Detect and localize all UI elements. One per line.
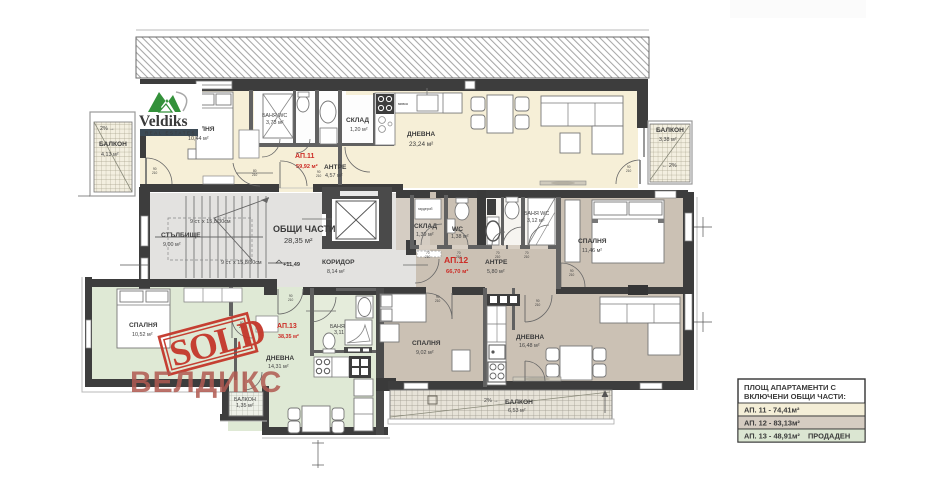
svg-text:210: 210 (456, 255, 462, 259)
svg-text:5,80 м²: 5,80 м² (487, 269, 505, 275)
svg-text:16,48 м²: 16,48 м² (519, 343, 540, 349)
svg-text:210: 210 (316, 174, 322, 178)
svg-text:4,13 м²: 4,13 м² (101, 152, 119, 158)
svg-text:ДНЕВНА: ДНЕВНА (266, 355, 294, 362)
svg-text:210: 210 (288, 298, 294, 302)
svg-text:210: 210 (569, 273, 575, 277)
svg-text:ОБЩИ ЧАСТИ: ОБЩИ ЧАСТИ (273, 224, 335, 234)
svg-text:3,38 м²: 3,38 м² (659, 137, 677, 143)
svg-text:БАНЯ WC: БАНЯ WC (524, 211, 549, 217)
svg-text:АП. 11 - 74,41м²: АП. 11 - 74,41м² (744, 406, 800, 415)
svg-text:210: 210 (524, 255, 530, 259)
svg-text:210: 210 (425, 255, 431, 259)
svg-text:3,12 м²: 3,12 м² (527, 218, 545, 224)
svg-text:66,70 м²: 66,70 м² (446, 268, 468, 275)
svg-text:СПАЛНЯ: СПАЛНЯ (578, 238, 607, 245)
svg-text:ДНЕВНА: ДНЕВНА (407, 131, 435, 138)
svg-text:1,20 м²: 1,20 м² (350, 127, 368, 133)
svg-text:3,73 м²: 3,73 м² (266, 120, 284, 126)
svg-text:1,35 м²: 1,35 м² (236, 403, 254, 409)
svg-text:АНТРЕ: АНТРЕ (324, 164, 347, 171)
svg-text:28,35 м²: 28,35 м² (284, 236, 313, 245)
svg-text:9 ст. x 15,8/30см: 9 ст. x 15,8/30см (221, 260, 262, 266)
svg-text:СПАЛНЯ: СПАЛНЯ (412, 340, 441, 347)
svg-text:11,46 м²: 11,46 м² (582, 248, 602, 254)
svg-text:210: 210 (495, 255, 501, 259)
svg-text:10,52 м²: 10,52 м² (132, 332, 153, 338)
svg-text:9,02 м²: 9,02 м² (416, 350, 434, 356)
svg-text:210: 210 (626, 169, 632, 173)
svg-text:гардероб: гардероб (418, 207, 432, 211)
svg-text:6,53 м²: 6,53 м² (508, 408, 526, 414)
svg-text:210: 210 (152, 171, 158, 175)
svg-text:СТЪЛБИЩЕ: СТЪЛБИЩЕ (161, 232, 201, 239)
svg-text:КОРИДОР: КОРИДОР (322, 259, 355, 266)
svg-text:СПАЛНЯ: СПАЛНЯ (129, 322, 158, 329)
svg-text:210: 210 (435, 299, 441, 303)
svg-text:АП.11: АП.11 (295, 153, 314, 160)
svg-text:АП.13: АП.13 (277, 323, 297, 330)
svg-text:БАЛКОН: БАЛКОН (656, 127, 684, 134)
svg-text:ПЛОЩ АПАРТАМЕНТИ С: ПЛОЩ АПАРТАМЕНТИ С (744, 383, 837, 392)
svg-text:БАЛКОН: БАЛКОН (505, 399, 533, 406)
svg-text:АП. 13 - 48,91м²: АП. 13 - 48,91м² (744, 432, 800, 441)
svg-text:СКЛАД: СКЛАД (346, 117, 369, 124)
svg-text:АНТРЕ: АНТРЕ (485, 259, 508, 266)
svg-text:ВЕЛДИКС: ВЕЛДИКС (130, 366, 282, 399)
svg-text:СКЛАД: СКЛАД (414, 223, 437, 230)
svg-text:210: 210 (252, 173, 258, 177)
svg-text:REAL ESTATES: REAL ESTATES (145, 131, 196, 136)
svg-text:ВКЛЮЧЕНИ ОБЩИ ЧАСТИ:: ВКЛЮЧЕНИ ОБЩИ ЧАСТИ: (744, 392, 846, 401)
svg-text:38,35 м²: 38,35 м² (278, 334, 299, 340)
svg-text:БАЛКОН: БАЛКОН (99, 141, 127, 148)
svg-text:9,00 м²: 9,00 м² (163, 242, 181, 248)
svg-text:2% →: 2% → (484, 398, 499, 404)
svg-text:8,14 м²: 8,14 м² (327, 269, 345, 275)
svg-text:9 ст. x 15,8/30см: 9 ст. x 15,8/30см (190, 219, 231, 225)
svg-text:2% →: 2% → (100, 126, 115, 132)
svg-text:АП. 12 - 83,13м²: АП. 12 - 83,13м² (744, 419, 800, 428)
svg-text:4,57 м²: 4,57 м² (325, 173, 343, 179)
svg-text:210: 210 (535, 303, 541, 307)
svg-text:Veldiks: Veldiks (139, 113, 188, 130)
svg-text:ДНЕВНА: ДНЕВНА (516, 334, 544, 341)
svg-text:БАНЯ WC: БАНЯ WC (262, 113, 287, 119)
svg-text:10,44 м²: 10,44 м² (188, 136, 209, 142)
svg-text:ПРОДАДЕН: ПРОДАДЕН (808, 432, 850, 441)
svg-text:мивка: мивка (398, 102, 408, 106)
svg-text:23,24 м²: 23,24 м² (409, 141, 433, 148)
svg-text:← 2%: ← 2% (662, 163, 677, 169)
